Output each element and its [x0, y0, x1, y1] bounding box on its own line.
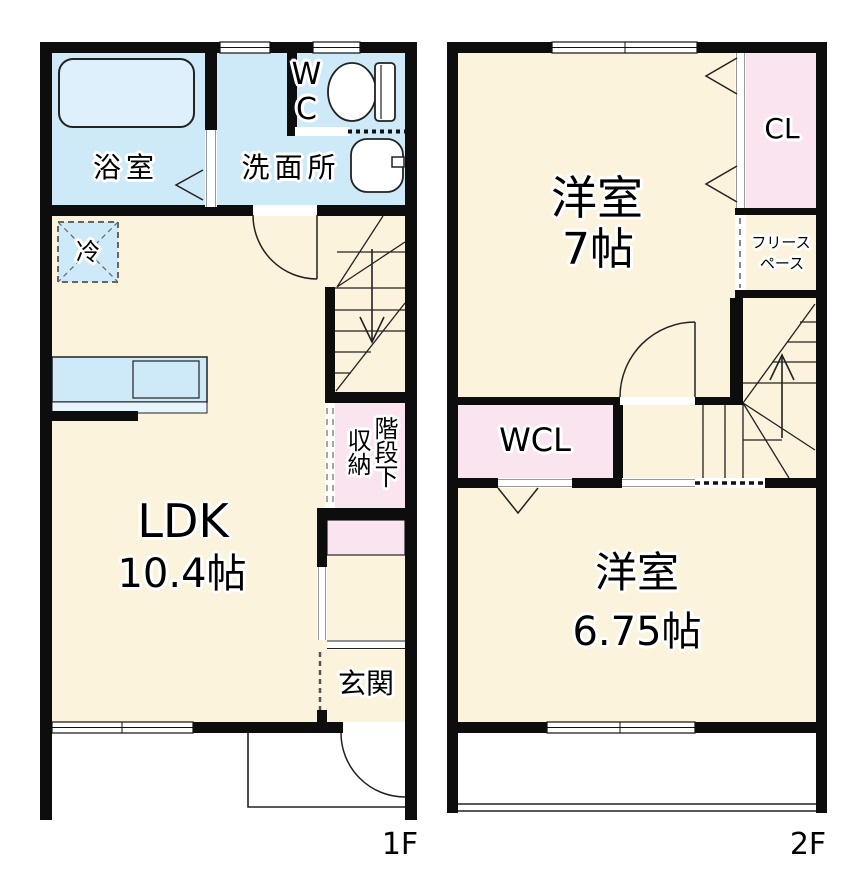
- window: [313, 42, 360, 53]
- floorplan-drawing: [0, 0, 867, 896]
- door-swing-arc: [341, 733, 405, 797]
- hall-sliding-opening: [622, 478, 695, 488]
- window: [220, 42, 270, 53]
- label-entrance: 玄関: [338, 670, 394, 698]
- label-bedroom2-size: 6.75帖: [572, 612, 701, 652]
- label-free-space-2: ペース: [760, 257, 804, 272]
- floorplan-page: 浴室 洗面所 WC 冷 LDK 10.4帖 階段下 収納 玄関 1F 洋室 7帖…: [0, 0, 867, 896]
- window: [52, 722, 193, 733]
- ldk-sliding-door: [317, 567, 327, 640]
- label-floor-1f: 1F: [382, 830, 418, 860]
- balcony-wall: [447, 733, 458, 813]
- entrance-step: [327, 640, 405, 650]
- free-space-dashed-opening: [735, 215, 746, 290]
- kitchen-sink: [133, 361, 199, 398]
- label-bedroom2-name: 洋室: [595, 552, 679, 594]
- window: [552, 42, 697, 53]
- balcony-railing: [458, 804, 816, 811]
- label-closet: CL: [764, 115, 799, 143]
- label-wc: WC: [291, 57, 321, 127]
- label-ldk-name: LDK: [137, 498, 228, 544]
- porch-outline: [248, 733, 405, 807]
- washbasin: [351, 139, 404, 192]
- label-stair-storage-2: 収納: [345, 428, 369, 476]
- storage-dashed-opening: [325, 403, 335, 508]
- entrance-closet: [327, 520, 405, 555]
- kitchen-counter: [52, 357, 207, 421]
- label-bedroom1-name: 洋室: [551, 175, 643, 221]
- label-floor-2f: 2F: [790, 830, 826, 860]
- label-fridge: 冷: [76, 240, 100, 264]
- toilet: [328, 63, 395, 121]
- label-ldk-size: 10.4帖: [117, 554, 246, 594]
- balcony-wall: [816, 733, 827, 813]
- label-bedroom1-size: 7帖: [562, 228, 634, 272]
- label-washroom: 洗面所: [241, 154, 340, 182]
- stair-dashed-edge: [695, 478, 765, 488]
- label-bath: 浴室: [93, 154, 159, 182]
- entrance-door: [341, 722, 405, 797]
- bathtub: [59, 59, 194, 127]
- label-stair-storage-1: 階段下: [372, 416, 396, 488]
- label-wcl: WCL: [499, 424, 571, 456]
- label-free-space-1: フリース: [751, 236, 810, 251]
- window: [547, 722, 695, 733]
